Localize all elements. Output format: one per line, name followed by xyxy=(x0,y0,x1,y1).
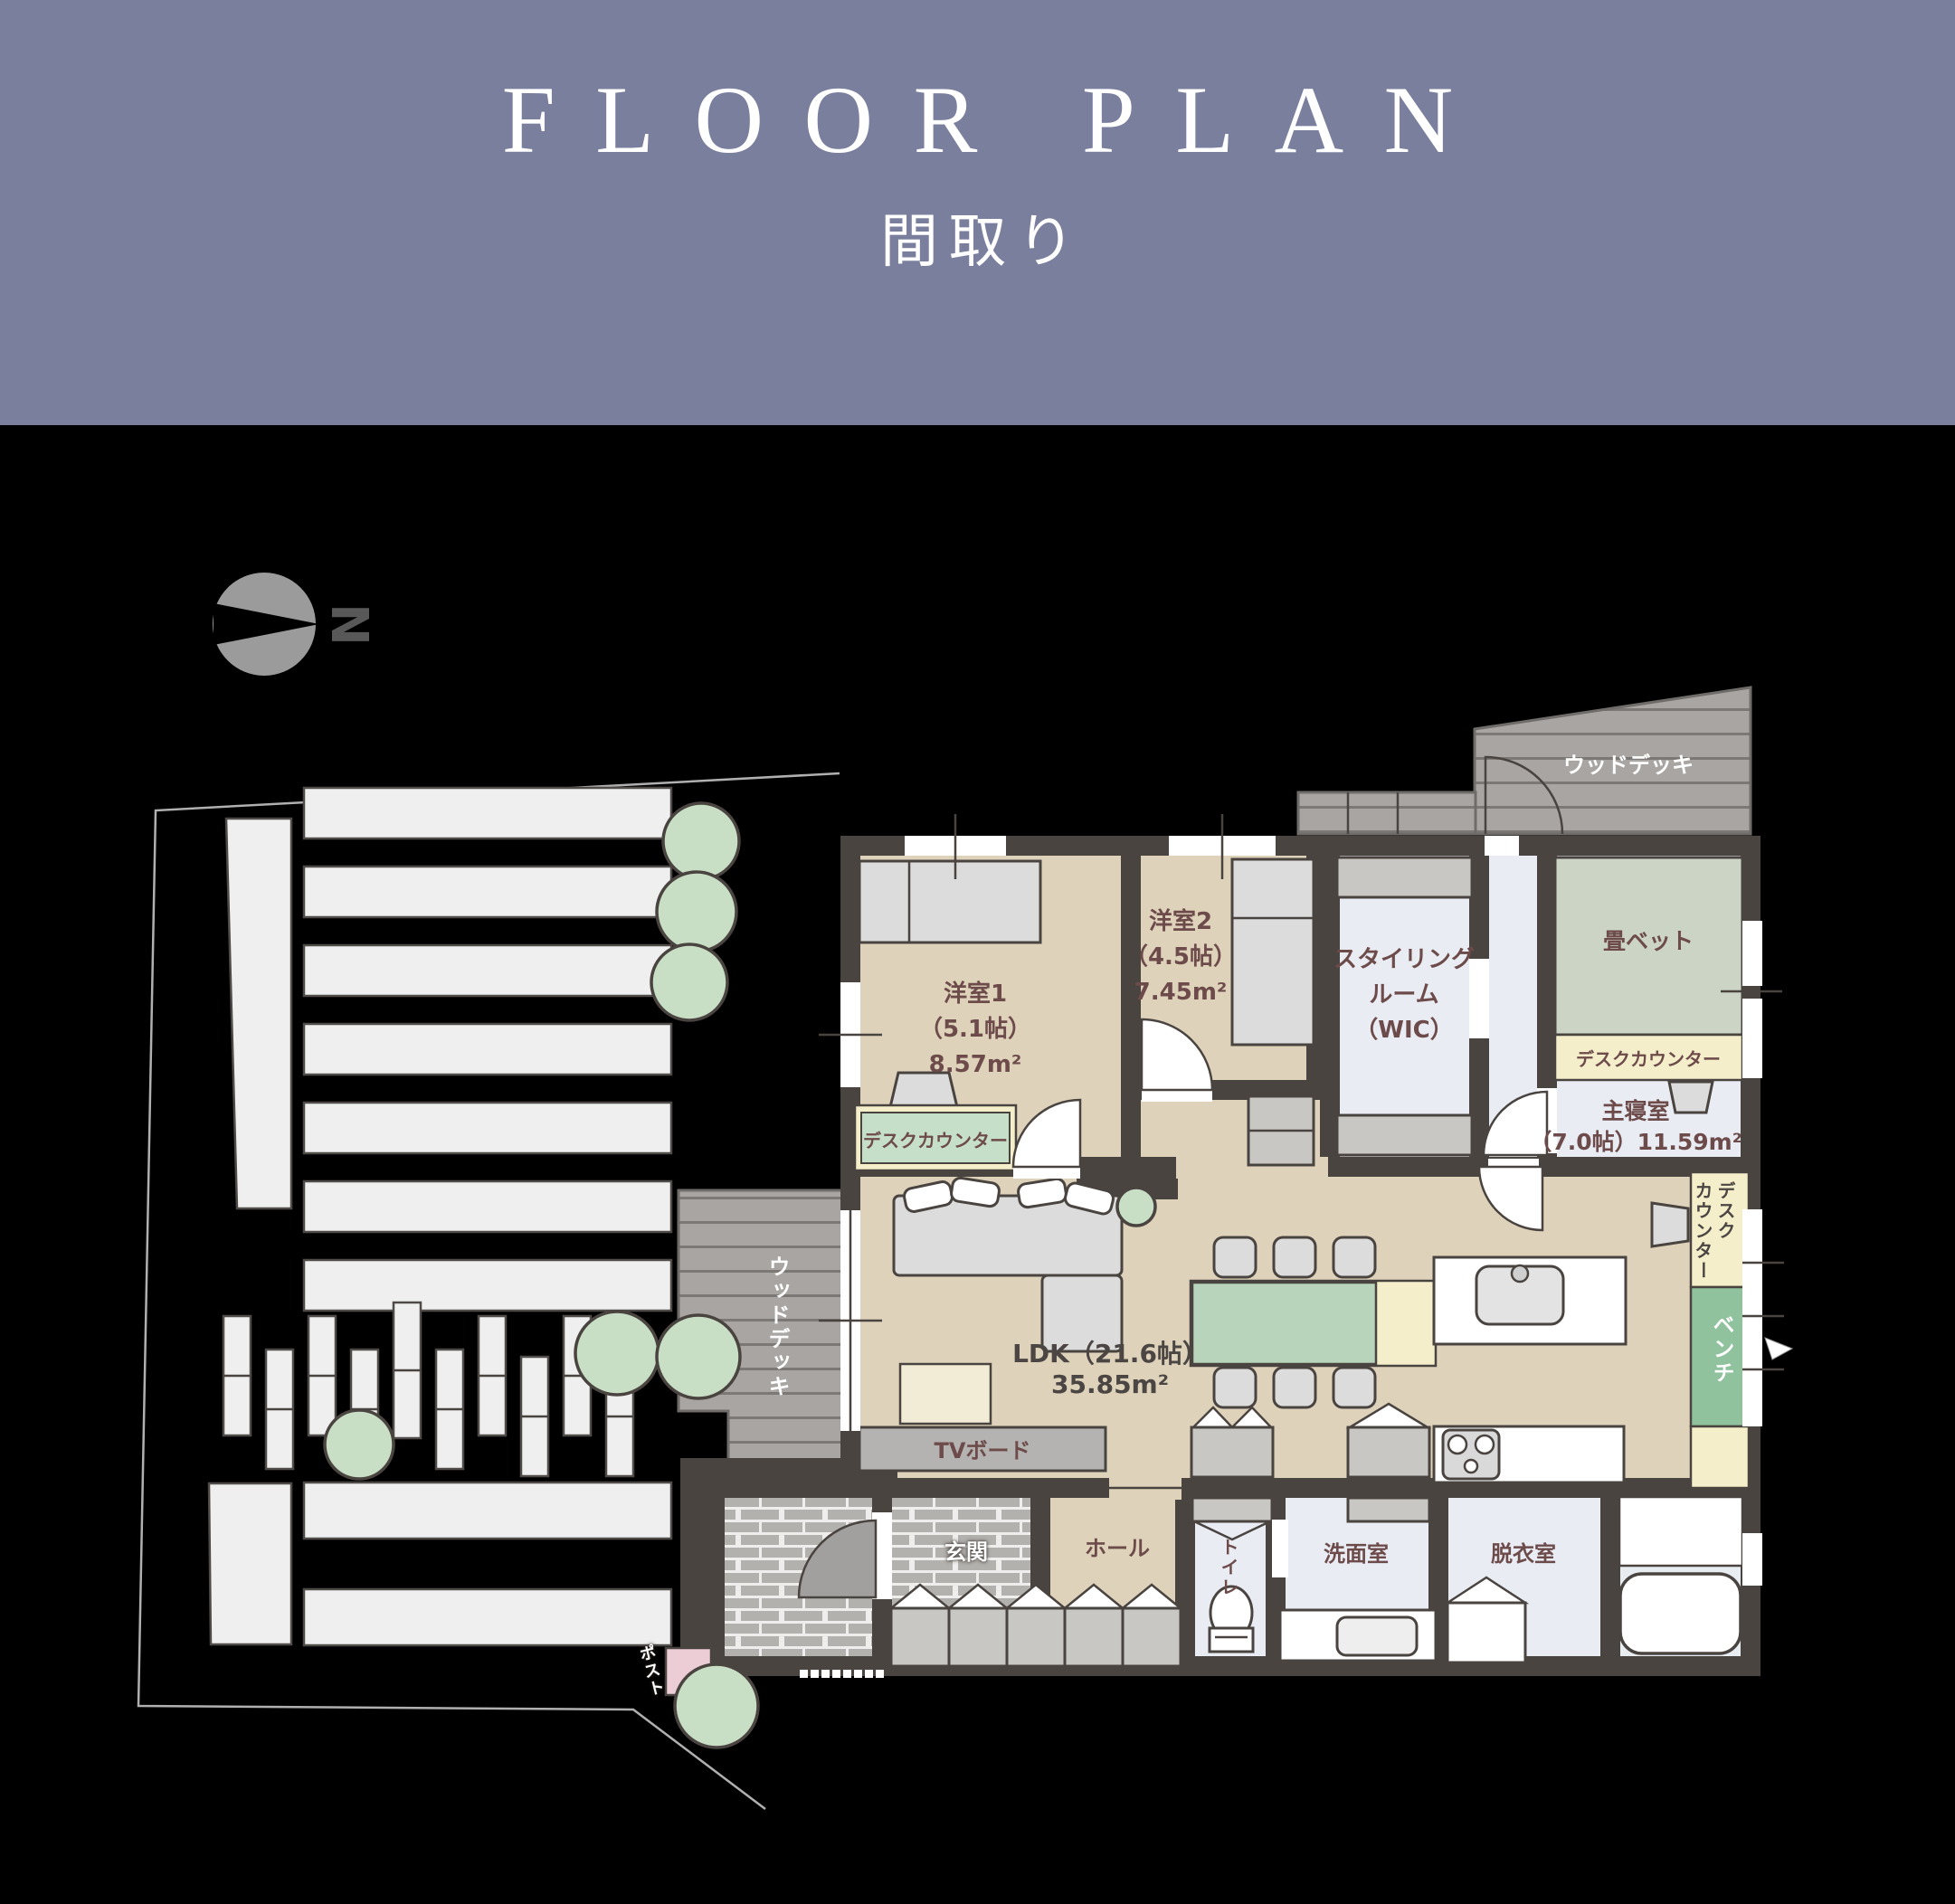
page-subtitle: 間取り xyxy=(0,195,1955,279)
room-label-yoshitsu2: 洋室2 （4.5帖） 7.45m² xyxy=(1125,905,1237,1010)
side-table xyxy=(900,1364,991,1424)
bathtub-area xyxy=(1619,1497,1742,1653)
houseplant xyxy=(1117,1188,1155,1226)
label-desk-counter-master: デスクカウンター xyxy=(1576,1046,1721,1073)
shoe-cabinets xyxy=(891,1585,1181,1666)
kitchen-island xyxy=(1434,1257,1626,1344)
compass-icon xyxy=(213,573,319,676)
room-label-ldk: LDK（21.6帖） 35.85m² xyxy=(1012,1339,1208,1399)
room-label-washroom: 洗面室 xyxy=(1324,1538,1389,1570)
counter-below-bench xyxy=(1691,1426,1749,1488)
storage-washroom-top xyxy=(1348,1404,1429,1521)
label-desk-counter-right-col2: カウンター xyxy=(1690,1181,1716,1281)
room-label-genkan: 玄関 xyxy=(944,1536,988,1568)
label-tatami-bed: 畳ベット xyxy=(1603,924,1694,959)
label-wood-deck-top: ウッドデッキ xyxy=(1563,749,1694,781)
label-bench: ベンチ xyxy=(1706,1313,1738,1385)
deck-step-band xyxy=(1298,792,1476,834)
closet-yoshitsu2 xyxy=(1248,1096,1314,1165)
label-desk-counter-yoshitsu1: デスクカウンター xyxy=(863,1127,1008,1154)
kitchen-stove-counter xyxy=(1434,1426,1624,1482)
room-label-master: 主寝室 （7.0帖）11.59m² xyxy=(1529,1096,1741,1158)
bathtub xyxy=(1620,1574,1741,1653)
room-label-dressing: 脱衣室 xyxy=(1491,1538,1556,1570)
room-label-styling: スタイリング ルーム （WIC） xyxy=(1333,943,1475,1048)
bed-yoshitsu2 xyxy=(1232,859,1314,1045)
parking-stripes xyxy=(209,788,671,1645)
room-label-toilet: トイレ xyxy=(1216,1538,1242,1597)
desk-chair-ldk xyxy=(1652,1203,1688,1246)
label-desk-counter-right-col1: デスク xyxy=(1713,1181,1739,1241)
storage-toilet-top xyxy=(1191,1407,1273,1539)
page-title: FLOOR PLAN xyxy=(0,0,1955,175)
floor-plan-page: FLOOR PLAN 間取り N 洋室1 （5.1帖） 8.57m² デスクカウ… xyxy=(0,0,1955,1904)
label-tv-board: TVボード xyxy=(935,1435,1031,1467)
fence-slats xyxy=(223,1302,633,1476)
room-label-yoshitsu1: 洋室1 （5.1帖） 8.57m² xyxy=(919,977,1031,1083)
north-label: N xyxy=(319,603,378,646)
room-label-hall: ホール xyxy=(1085,1532,1150,1565)
dining-table xyxy=(1191,1281,1436,1366)
vanity xyxy=(1280,1610,1436,1661)
label-wood-deck-left: ウッドデッキ xyxy=(762,1255,793,1398)
sink-faucet xyxy=(1512,1265,1528,1282)
wic-closet-bottom xyxy=(1337,1115,1472,1155)
header: FLOOR PLAN 間取り xyxy=(0,0,1955,425)
bed-yoshitsu1 xyxy=(859,861,1040,943)
mouse-cursor xyxy=(1765,1338,1792,1359)
wic-closet-top xyxy=(1337,857,1472,897)
